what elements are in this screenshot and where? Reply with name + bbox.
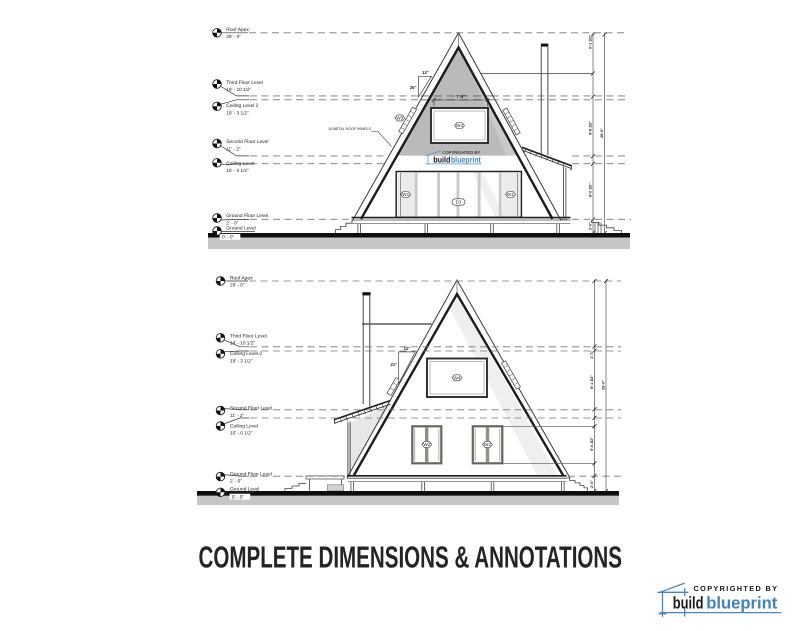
svg-text:Ceiling Level 2: Ceiling Level 2: [226, 103, 258, 109]
svg-text:29' - 0": 29' - 0": [230, 282, 245, 287]
svg-text:blueprint: blueprint: [451, 155, 481, 165]
svg-text:8'-0 1/2": 8'-0 1/2": [590, 437, 594, 451]
svg-text:Ground Floor Level: Ground Floor Level: [230, 471, 272, 477]
svg-text:2'-0": 2'-0": [588, 222, 592, 230]
svg-text:21": 21": [391, 362, 398, 367]
svg-text:Third Floor Level: Third Floor Level: [226, 80, 263, 86]
svg-text:5'-1 1/2": 5'-1 1/2": [588, 35, 592, 49]
svg-text:25": 25": [410, 85, 417, 90]
svg-text:Third Floor Level: Third Floor Level: [230, 333, 267, 339]
svg-text:8'-8 1/2": 8'-8 1/2": [588, 121, 592, 135]
svg-text:Ceiling Level: Ceiling Level: [230, 423, 258, 429]
svg-text:Ground Level: Ground Level: [230, 486, 259, 492]
svg-text:Roof Apex: Roof Apex: [230, 275, 253, 281]
svg-text:Ground Floor Level: Ground Floor Level: [226, 213, 268, 219]
svg-text:W3: W3: [396, 116, 403, 121]
svg-text:build: build: [433, 155, 450, 165]
svg-text:29'-0": 29'-0": [600, 128, 604, 138]
svg-text:2' - 0": 2' - 0": [230, 479, 242, 484]
svg-text:19' - 3 1/2": 19' - 3 1/2": [230, 358, 253, 363]
svg-text:19' - 10 1/2": 19' - 10 1/2": [226, 87, 251, 92]
svg-text:Roof Apex: Roof Apex: [226, 27, 249, 33]
svg-text:Ground Level: Ground Level: [226, 226, 255, 232]
svg-text:Second Floor Level: Second Floor Level: [226, 139, 268, 145]
svg-text:1'-7": 1'-7": [590, 351, 594, 359]
svg-text:10' - 0 1/2": 10' - 0 1/2": [230, 431, 253, 436]
svg-text:10' - 0 1/2": 10' - 0 1/2": [226, 168, 249, 173]
svg-text:19' - 10 1/2": 19' - 10 1/2": [230, 341, 255, 346]
svg-text:D1: D1: [456, 200, 462, 205]
svg-text:W4: W4: [456, 123, 463, 128]
svg-text:Second Floor Level: Second Floor Level: [230, 406, 272, 412]
svg-text:W1: W1: [507, 192, 514, 197]
svg-text:0' - 0": 0' - 0": [232, 494, 245, 500]
svg-text:11' - 2": 11' - 2": [226, 146, 241, 151]
svg-text:build: build: [673, 593, 704, 612]
svg-text:19' - 3 1/2": 19' - 3 1/2": [226, 110, 249, 115]
svg-text:W2: W2: [484, 442, 491, 447]
svg-text:COPYRIGHTED BY: COPYRIGHTED BY: [694, 584, 778, 593]
svg-text:16 METAL ROOF PANELS: 16 METAL ROOF PANELS: [328, 127, 371, 131]
svg-text:8'-1 1/2": 8'-1 1/2": [590, 375, 594, 389]
svg-text:blueprint: blueprint: [706, 593, 777, 612]
svg-text:0' - 0": 0' - 0": [222, 235, 235, 241]
svg-text:2' - 0": 2' - 0": [226, 221, 238, 226]
svg-text:7'-4": 7'-4": [456, 94, 465, 99]
svg-text:W1: W1: [402, 192, 409, 197]
svg-text:W4: W4: [454, 376, 461, 381]
svg-text:W2: W2: [423, 442, 430, 447]
svg-text:Ceiling Level: Ceiling Level: [226, 161, 254, 167]
svg-text:11' - 2": 11' - 2": [230, 413, 245, 418]
svg-text:COMPLETE DIMENSIONS & ANNOTATI: COMPLETE DIMENSIONS & ANNOTATIONS: [199, 540, 623, 574]
svg-text:29'-0": 29'-0": [601, 380, 605, 390]
svg-text:12": 12": [422, 70, 429, 75]
svg-text:Ceiling Level 2: Ceiling Level 2: [230, 351, 262, 357]
svg-text:8'-0 1/2": 8'-0 1/2": [588, 183, 592, 197]
svg-text:29' - 0": 29' - 0": [226, 34, 241, 39]
svg-text:2'-0": 2'-0": [590, 480, 594, 488]
